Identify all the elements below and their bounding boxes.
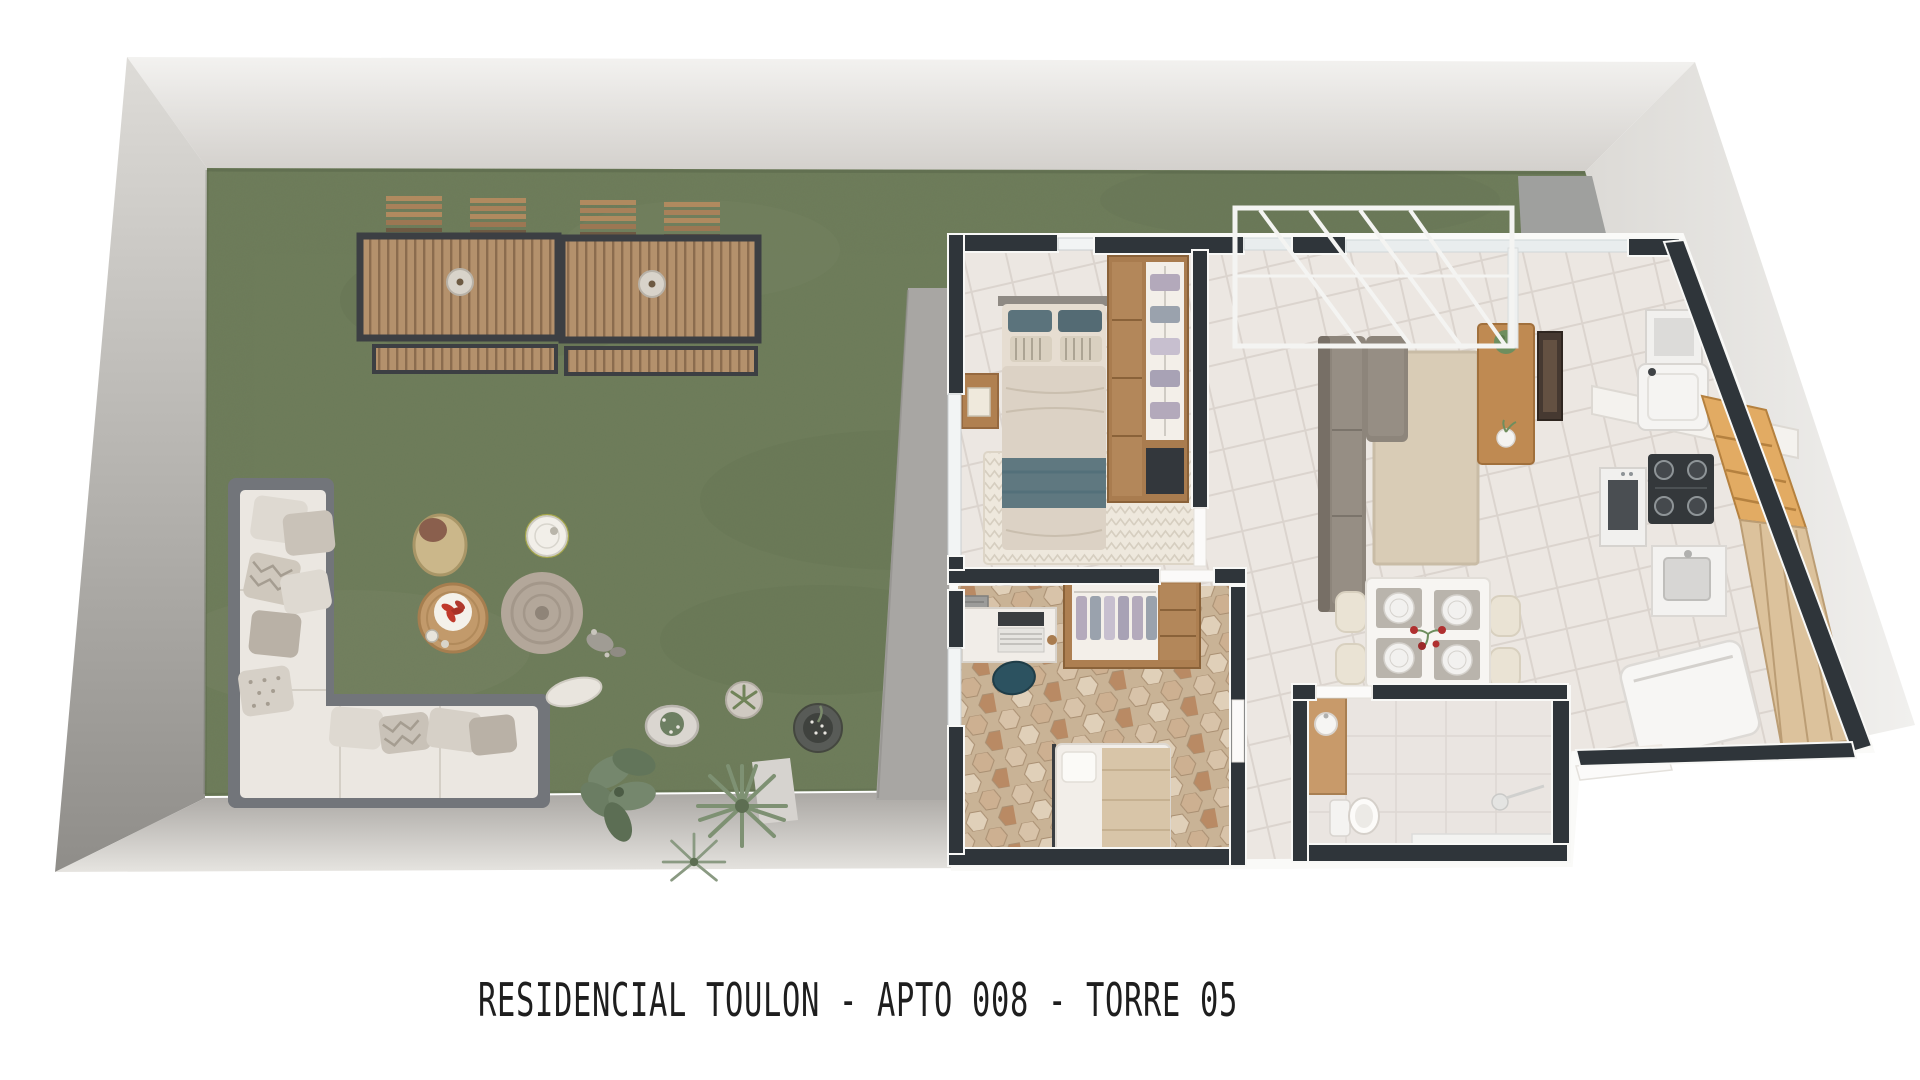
dining-chair — [1490, 648, 1520, 688]
wall-top — [127, 57, 1695, 172]
washing-machine — [1638, 364, 1708, 430]
bedroom2-window — [948, 648, 961, 726]
wall-bath-right — [1552, 686, 1570, 862]
wardrobe-bedroom1 — [1108, 256, 1188, 502]
window — [1058, 238, 1094, 250]
pergola-bench-1 — [374, 346, 556, 372]
wall-bed2-bottom — [948, 848, 1240, 866]
bathroom-door-gap — [1316, 686, 1372, 698]
kitchen-sink — [1652, 546, 1726, 616]
floor-plan-render: RESIDENCIAL TOULON - APTO 008 - TORRE 05 — [0, 0, 1920, 1080]
tv-panel — [1538, 332, 1562, 420]
dining-chair — [1490, 596, 1520, 636]
desk — [962, 608, 1057, 662]
pergola-bench-2 — [566, 348, 756, 374]
bedroom2-door-gap — [1232, 700, 1244, 762]
wardrobe-bedroom2 — [1064, 576, 1200, 668]
desk-mug — [1047, 635, 1057, 645]
dining-chair — [1336, 592, 1366, 632]
cactus-pot — [726, 682, 762, 718]
caption-title: RESIDENCIAL TOULON - APTO 008 - TORRE 05 — [478, 973, 1238, 1027]
basket-with-hat — [414, 515, 466, 575]
wall-bed1-bed2 — [948, 568, 1160, 584]
bedroom1-window — [948, 394, 961, 560]
stove — [1648, 454, 1714, 524]
floor-plan-page: RESIDENCIAL TOULON - APTO 008 - TORRE 05 — [0, 0, 1920, 1080]
jute-pouf — [501, 572, 583, 654]
wall-bed1-left — [948, 234, 964, 394]
dark-planter — [794, 704, 842, 752]
bathroom — [1306, 698, 1556, 850]
palm-plant — [698, 766, 786, 846]
side-table-round — [526, 515, 569, 558]
wall-bath-left — [1292, 686, 1308, 862]
wall-left — [55, 57, 207, 872]
toilet — [1330, 798, 1379, 836]
double-bed — [998, 296, 1110, 550]
bedroom1-door-gap — [1194, 508, 1206, 566]
nightstand — [962, 374, 998, 428]
succulent-bowl — [646, 706, 698, 746]
wall-bath-bottom — [1292, 844, 1568, 862]
dining-chair — [1336, 644, 1366, 684]
microwave — [1600, 468, 1646, 546]
wall-bed1-right — [1192, 250, 1208, 508]
single-bed — [1052, 744, 1170, 864]
bedroom-door-gap — [1160, 570, 1214, 582]
wicker-tray-table — [419, 584, 487, 652]
